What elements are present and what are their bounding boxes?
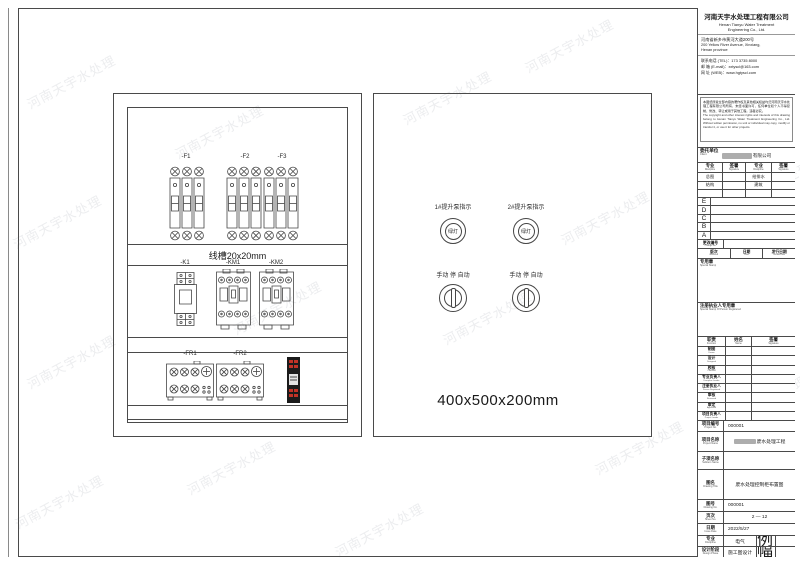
selector-label-1: 手动 停 自动	[436, 270, 469, 279]
sign-role-cell: 制图Drawn	[698, 347, 726, 356]
sign-signature-cell	[752, 403, 795, 412]
sign-name-cell	[726, 393, 752, 402]
breaker-label-f2: -F2	[241, 154, 250, 160]
drawing-title-label: 图名Drawing Title	[698, 470, 724, 499]
signature-table: 职责Function 姓名Name 签署Signature 制图Drawn 设计…	[698, 337, 795, 421]
disc-header-cell: 签署Signature	[723, 163, 746, 173]
sign-signature-cell	[752, 412, 795, 421]
sign-signature-cell	[752, 356, 795, 365]
scale-label: 比例Scale	[756, 536, 776, 546]
selector-handle	[524, 288, 529, 308]
sign-signature-cell	[752, 393, 795, 402]
circuit-breaker-f1	[169, 165, 205, 243]
revision-letter: D	[698, 206, 711, 213]
issue-date-value: 2022/5/27	[724, 524, 795, 535]
cabinet-dimension-text: 400x500x200mm	[437, 392, 559, 409]
sign-signature-cell	[752, 347, 795, 356]
revision-letter: B	[698, 223, 711, 230]
disc-cell: 建筑	[746, 182, 772, 190]
sign-header-cell: 签署Signature	[752, 337, 795, 347]
issue-date-row: 日期Issue Date 2022/5/27	[698, 524, 795, 536]
disc-cell	[772, 190, 795, 197]
sign-role-cell: 专业负责人Discipline Leader	[698, 375, 726, 384]
sign-role-cell: 项目负责人Project Leader	[698, 412, 726, 421]
change-number-row: 更改编号 Change No.	[698, 240, 795, 249]
design-phase-label: 设计阶段Design Phase	[698, 547, 724, 557]
drawing-title-row: 图名Drawing Title 废水处理控制柜布置图	[698, 470, 795, 500]
project-no-value: 000001	[724, 421, 795, 431]
contactor-label-km1: -KM1	[226, 260, 240, 266]
project-name-value: 废水处理工程	[724, 432, 795, 451]
revision-letter: C	[698, 215, 711, 222]
special-stamp-label: 专用章 Special Stamp	[700, 260, 716, 268]
circuit-breaker-f2	[226, 165, 262, 243]
change-number-value	[724, 240, 795, 248]
redaction-box	[734, 439, 756, 444]
revision-letter: A	[698, 232, 711, 239]
cabinet-door-outline: 1#提升泵指示 2#提升泵指示 绿灯 绿灯 手动 停 自动 手动 停 自动 40…	[373, 93, 652, 437]
company-tel: 联系电话 (TEL)：173 3735 8000	[698, 56, 795, 64]
contactor-km2	[259, 269, 294, 330]
disc-cell	[772, 173, 795, 182]
drawing-no-value: 000001	[724, 500, 795, 511]
thermal-relay-label-fr2: -FR2	[233, 351, 246, 357]
disc-header-cell: 专业Discipline	[746, 163, 772, 173]
subitem-name-row: 子项名称Subitem Name	[698, 452, 795, 470]
sign-role-cell: 校核Checked	[698, 366, 726, 375]
sign-signature-cell	[752, 375, 795, 384]
revision-row: B	[698, 223, 795, 231]
format-label: 图幅Format	[756, 547, 776, 557]
selector-handle	[451, 288, 456, 308]
sign-name-cell	[726, 375, 752, 384]
discipline-row: 专业Discipline 电气 比例Scale	[698, 536, 795, 547]
rev-col: 版次Revision	[698, 249, 731, 258]
disc-cell	[772, 182, 795, 190]
copyright-notice-box: 本图纸所载全部内容的著作权及其他相关权益均归河南天宇水处理工程有限公司所有，未经…	[700, 97, 793, 142]
sign-header-cell: 姓名Name	[726, 337, 752, 347]
revision-letter: E	[698, 198, 711, 205]
redaction-box	[722, 153, 752, 159]
sign-role-cell: 审定Approved	[698, 403, 726, 412]
company-address-en-line2: Henan province	[701, 48, 792, 53]
sign-name-cell	[726, 356, 752, 365]
registered-stamp-section: 注册执业人专用章 Special Stamp Of Person Registe…	[698, 303, 795, 337]
drawing-no-row: 图号Drawing No. 000001	[698, 500, 795, 512]
copyright-notice-en: The copyright and other interest rights …	[703, 114, 790, 130]
lamp-lens-green: 绿灯	[518, 223, 535, 240]
disc-cell: 总图	[698, 173, 723, 182]
design-phase-row: 设计阶段Design Phase 施工图设计 图幅Format	[698, 547, 795, 557]
revision-row: C	[698, 215, 795, 223]
discipline-label: 专业Discipline	[698, 536, 724, 546]
revision-row: D	[698, 206, 795, 214]
client-section: 委托单位 Client 有限公司	[698, 148, 795, 163]
issued-col: 发行日期Issued Date	[763, 249, 795, 258]
company-name-cn: 河南天宇水处理工程有限公司	[698, 8, 795, 22]
sign-header-cell: 职责Function	[698, 337, 726, 347]
company-name-en-line2: Engineering Co., Ltd.	[700, 27, 793, 32]
registered-stamp-label: 注册执业人专用章 Special Stamp Of Person Registe…	[700, 304, 741, 312]
client-value: 有限公司	[698, 153, 795, 159]
date-col: 日期Date	[731, 249, 764, 258]
client-value-suffix: 有限公司	[753, 153, 771, 158]
indicator-lamp-1: 绿灯	[440, 218, 466, 244]
selector-switch-2	[512, 284, 540, 312]
company-section: 河南天宇水处理工程有限公司 Henan Tianyu Water Treatme…	[698, 8, 795, 95]
indicator-label-1: 1#提升泵指示	[435, 202, 472, 211]
selector-switch-1	[439, 284, 467, 312]
sign-signature-cell	[752, 384, 795, 393]
format-value	[776, 547, 795, 557]
design-phase-value: 施工图设计	[724, 547, 756, 557]
company-address-cn: 河南省新乡市黄河大道200号	[698, 35, 795, 43]
issue-date-label: 日期Issue Date	[698, 524, 724, 535]
thermal-relay-fr2	[216, 361, 264, 401]
subitem-label: 子项名称Subitem Name	[698, 452, 724, 469]
sign-name-cell	[726, 384, 752, 393]
sign-name-cell	[726, 366, 752, 375]
binding-edge-line	[8, 8, 9, 557]
sign-name-cell	[726, 403, 752, 412]
company-address-en: 200 Yellow River Avenue, Xinxiang, Henan…	[698, 43, 795, 56]
sheet-no-label: 页次Sheet No.	[698, 512, 724, 523]
breaker-label-f1: -F1	[182, 154, 191, 160]
revision-row: E	[698, 198, 795, 206]
lamp-lens-green: 绿灯	[445, 223, 462, 240]
sign-name-cell	[726, 347, 752, 356]
disc-cell	[746, 190, 772, 197]
title-block: 河南天宇水处理工程有限公司 Henan Tianyu Water Treatme…	[697, 8, 795, 557]
project-name-row: 项目名称Project Name 废水处理工程	[698, 432, 795, 452]
disc-cell: 结构	[698, 182, 723, 190]
thermal-relay-label-fr1: -FR1	[183, 351, 196, 357]
special-stamp-section: 专用章 Special Stamp	[698, 259, 795, 303]
circuit-breaker-f3	[263, 165, 299, 243]
revision-date-row: 版次Revision 日期Date 发行日期Issued Date	[698, 249, 795, 259]
breaker-label-f3: -F3	[278, 154, 287, 160]
scale-value	[776, 536, 795, 546]
disc-cell: 给排水	[746, 173, 772, 182]
contactor-label-km2: -KM2	[269, 260, 283, 266]
disc-header-cell: 专业Discipline	[698, 163, 723, 173]
cabinet-mounting-plate: -F1 -F2 -F3	[127, 107, 348, 423]
sheet-no-value: 2 — 12	[724, 512, 795, 523]
revision-row: A	[698, 232, 795, 239]
wire-duct	[127, 405, 348, 420]
sign-role-cell: 设计Designed	[698, 356, 726, 365]
change-number-label: 更改编号 Change No.	[698, 240, 724, 248]
project-name-label: 项目名称Project Name	[698, 432, 724, 451]
copyright-notice-section: 本图纸所载全部内容的著作权及其他相关权益均归河南天宇水处理工程有限公司所有，未经…	[698, 95, 795, 148]
sign-role-cell: 审核Reviewed	[698, 393, 726, 402]
disc-header-cell: 签署Signature	[772, 163, 795, 173]
revision-rows: E D C B A	[698, 198, 795, 240]
discipline-table: 专业Discipline 签署Signature 专业Discipline 签署…	[698, 163, 795, 198]
discipline-value: 电气	[724, 536, 756, 546]
selector-label-2: 手动 停 自动	[509, 270, 542, 279]
subitem-value	[724, 452, 795, 469]
disc-cell	[723, 182, 746, 190]
sign-name-cell	[726, 412, 752, 421]
sign-signature-cell	[752, 366, 795, 375]
thermal-relay-fr1	[166, 361, 214, 401]
indicator-lamp-2: 绿灯	[513, 218, 539, 244]
indicator-label-2: 2#提升泵指示	[508, 202, 545, 211]
disc-cell	[723, 173, 746, 182]
relay-k1	[174, 272, 197, 327]
disc-cell	[698, 190, 723, 197]
copyright-notice-cn: 本图纸所载全部内容的著作权及其他相关权益均归河南天宇水处理工程有限公司所有，未经…	[703, 100, 790, 113]
project-no-label: 项目编号Project No.	[698, 421, 724, 431]
sign-role-cell: 注册执业人Person Registered	[698, 384, 726, 393]
sheet-no-row: 页次Sheet No. 2 — 12	[698, 512, 795, 524]
project-name-text: 废水处理工程	[757, 438, 786, 445]
contactor-km1	[216, 269, 251, 330]
relay-label-k1: -K1	[180, 260, 189, 266]
drawing-sheet: 河南天宇水处理 河南天宇水处理 河南天宇水处理 河南天宇水处理 河南天宇水处理 …	[0, 0, 800, 565]
company-name-en: Henan Tianyu Water Treatment Engineering…	[698, 22, 795, 35]
power-module	[287, 357, 300, 403]
project-no-row: 项目编号Project No. 000001	[698, 421, 795, 432]
drawing-title-value: 废水处理控制柜布置图	[724, 470, 795, 499]
disc-cell	[723, 190, 746, 197]
drawing-no-label: 图号Drawing No.	[698, 500, 724, 511]
company-web: 网 址 (WEB)：www.hgtyscl.com	[698, 70, 795, 76]
